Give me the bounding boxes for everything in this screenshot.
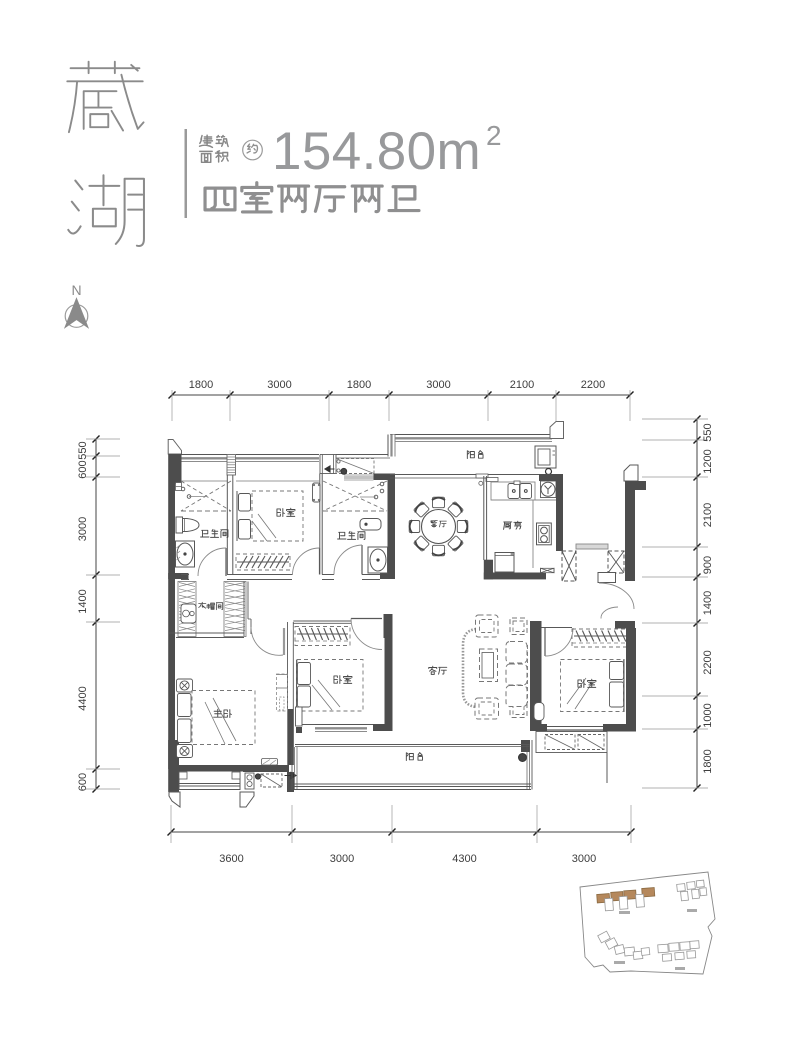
svg-text:550: 550 xyxy=(702,423,714,441)
svg-text:2100: 2100 xyxy=(510,379,534,391)
svg-text:3600: 3600 xyxy=(219,853,243,865)
svg-text:2200: 2200 xyxy=(581,379,605,391)
svg-text:1800: 1800 xyxy=(189,379,213,391)
svg-text:2100: 2100 xyxy=(702,503,714,527)
svg-text:3000: 3000 xyxy=(330,853,354,865)
svg-text:3000: 3000 xyxy=(572,853,596,865)
svg-text:550: 550 xyxy=(77,441,89,459)
svg-text:N: N xyxy=(71,282,81,298)
svg-text:3000: 3000 xyxy=(267,379,291,391)
svg-text:1800: 1800 xyxy=(347,379,371,391)
svg-text:1400: 1400 xyxy=(77,589,89,613)
svg-text:1000: 1000 xyxy=(702,703,714,727)
svg-text:1200: 1200 xyxy=(702,449,714,473)
svg-text:2: 2 xyxy=(486,120,502,151)
svg-text:4300: 4300 xyxy=(452,853,476,865)
svg-text:3000: 3000 xyxy=(426,379,450,391)
svg-text:900: 900 xyxy=(702,556,714,574)
svg-text:4400: 4400 xyxy=(77,686,89,710)
svg-text:2200: 2200 xyxy=(702,650,714,674)
svg-text:1800: 1800 xyxy=(702,749,714,773)
svg-text:600: 600 xyxy=(77,460,89,478)
svg-text:3000: 3000 xyxy=(77,517,89,541)
svg-text:154.80m: 154.80m xyxy=(272,122,481,181)
svg-text:1400: 1400 xyxy=(702,591,714,615)
svg-text:600: 600 xyxy=(77,773,89,791)
